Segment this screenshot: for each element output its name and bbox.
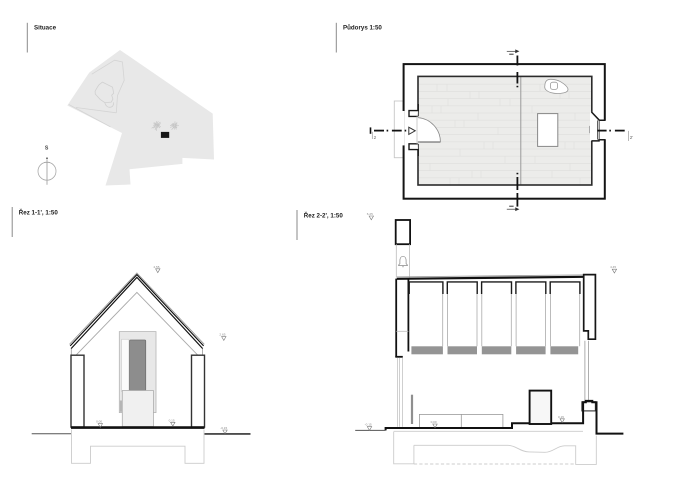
svg-text:0.00: 0.00 [96,420,102,424]
svg-text:2: 2 [374,135,377,140]
svg-text:4.45: 4.45 [610,265,616,269]
svg-text:0,15: 0,15 [558,415,564,419]
svg-text:0,00: 0,00 [431,420,437,424]
svg-text:Situace: Situace [34,24,57,31]
svg-text:S: S [45,146,49,152]
svg-text:0.15: 0.15 [169,418,175,422]
svg-text:2.65: 2.65 [219,333,225,337]
svg-text:-0.15: -0.15 [365,423,372,427]
svg-text:Řez 2-2', 1:50: Řez 2-2', 1:50 [304,211,344,219]
svg-text:2': 2' [630,135,634,140]
svg-text:-0.15: -0.15 [220,426,227,430]
svg-text:6.25: 6.25 [367,212,373,216]
svg-text:Řez 1-1', 1:50: Řez 1-1', 1:50 [19,209,59,217]
svg-text:Půdorys 1:50: Půdorys 1:50 [343,25,382,32]
svg-text:4.55: 4.55 [153,265,159,269]
